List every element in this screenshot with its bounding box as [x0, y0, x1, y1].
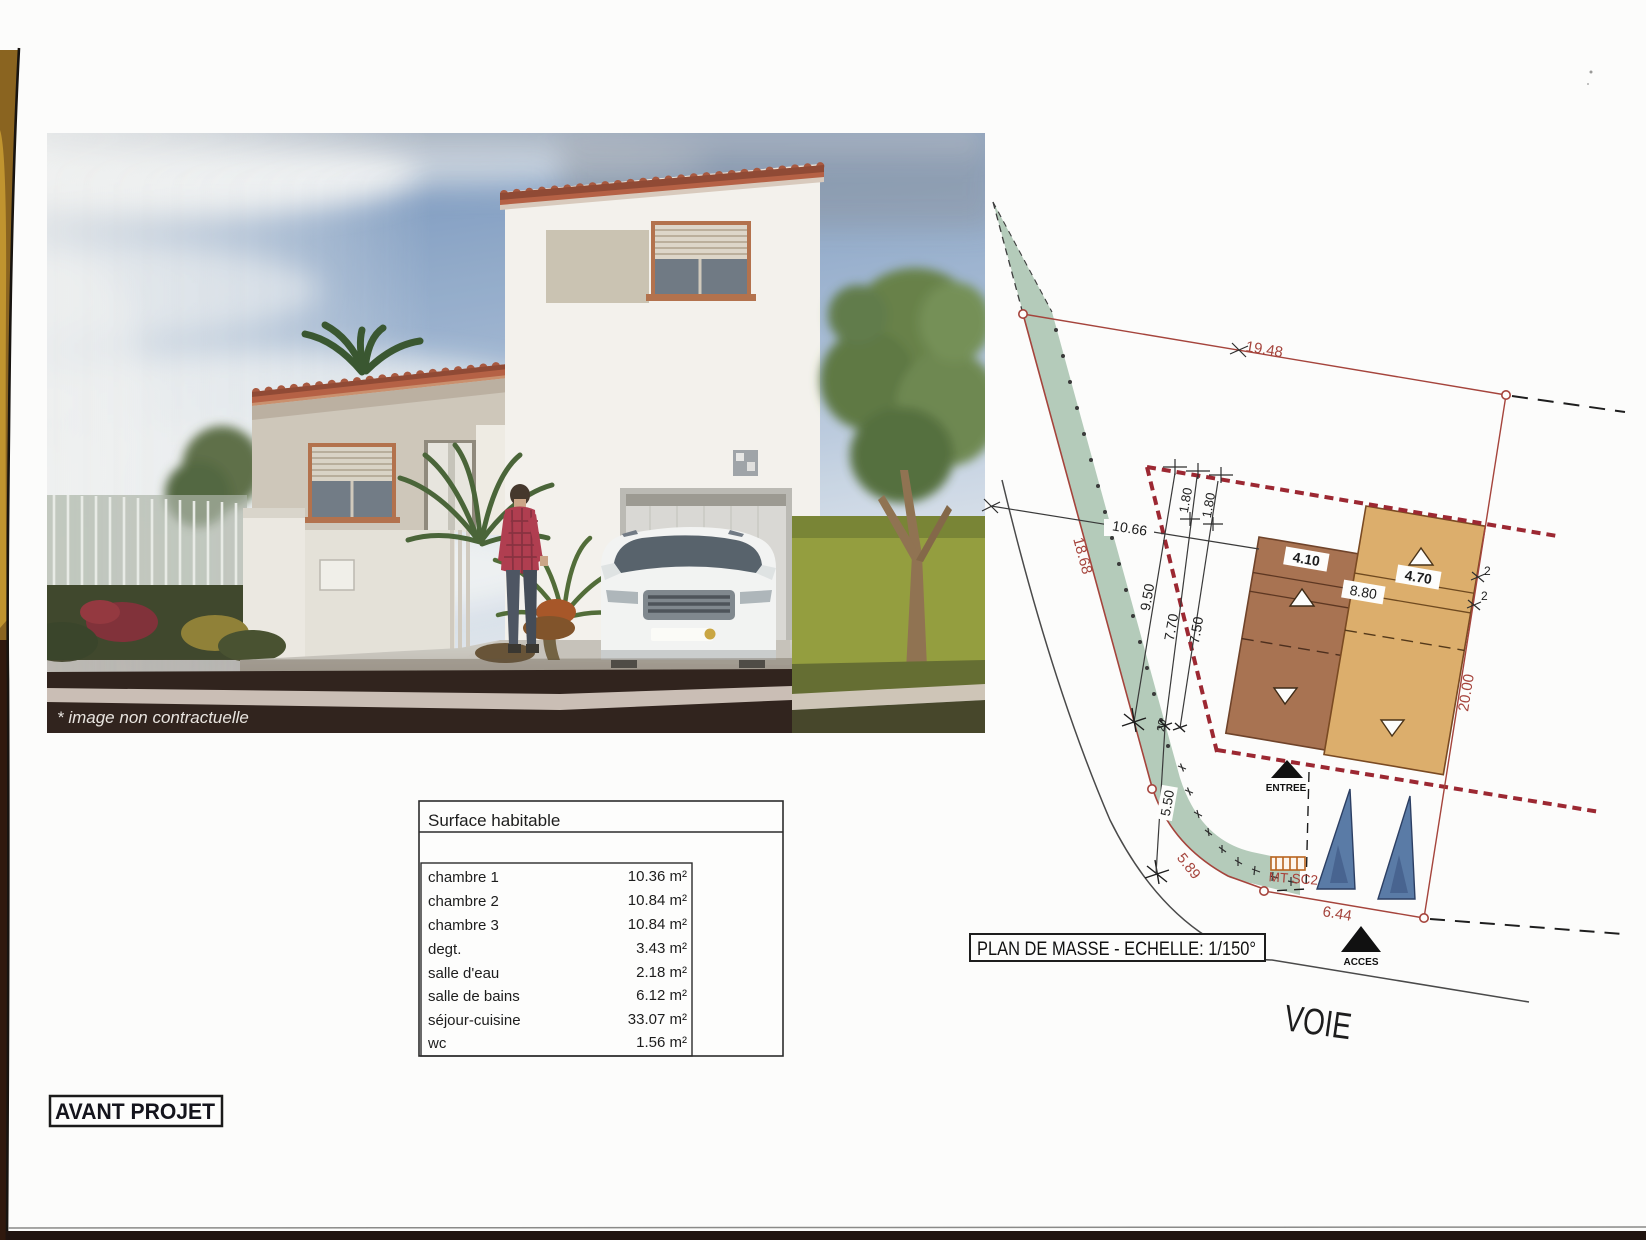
svg-text:20: 20	[1155, 718, 1169, 732]
svg-text:10.36 m²: 10.36 m²	[628, 868, 687, 885]
svg-text:2: 2	[1484, 564, 1491, 578]
svg-text:33.07 m²: 33.07 m²	[628, 1011, 687, 1028]
svg-text:10.84 m²: 10.84 m²	[628, 916, 687, 933]
svg-text:wc: wc	[427, 1035, 447, 1052]
svg-text:ENTREE: ENTREE	[1266, 783, 1307, 794]
svg-text:PLAN DE MASSE - ECHELLE: 1/150: PLAN DE MASSE - ECHELLE: 1/150°	[977, 939, 1256, 960]
svg-text:Surface habitable: Surface habitable	[428, 811, 560, 830]
svg-text:chambre 2: chambre 2	[428, 893, 499, 910]
svg-text:degt.: degt.	[428, 941, 461, 958]
svg-text:salle de bains: salle de bains	[428, 988, 520, 1005]
svg-text:10.84 m²: 10.84 m²	[628, 892, 687, 909]
svg-text:chambre 3: chambre 3	[428, 917, 499, 934]
svg-text:séjour-cuisine: séjour-cuisine	[428, 1012, 521, 1029]
svg-text:salle d'eau: salle d'eau	[428, 965, 499, 982]
svg-text:6.12 m²: 6.12 m²	[636, 987, 687, 1004]
svg-text:ACCES: ACCES	[1343, 957, 1378, 968]
svg-text:1.56 m²: 1.56 m²	[636, 1034, 687, 1051]
svg-text:2: 2	[1481, 589, 1488, 603]
svg-text:3.43 m²: 3.43 m²	[636, 940, 687, 957]
svg-text:2.18 m²: 2.18 m²	[636, 964, 687, 981]
svg-text:AVANT PROJET: AVANT PROJET	[55, 1099, 216, 1124]
svg-text:chambre 1: chambre 1	[428, 869, 499, 886]
